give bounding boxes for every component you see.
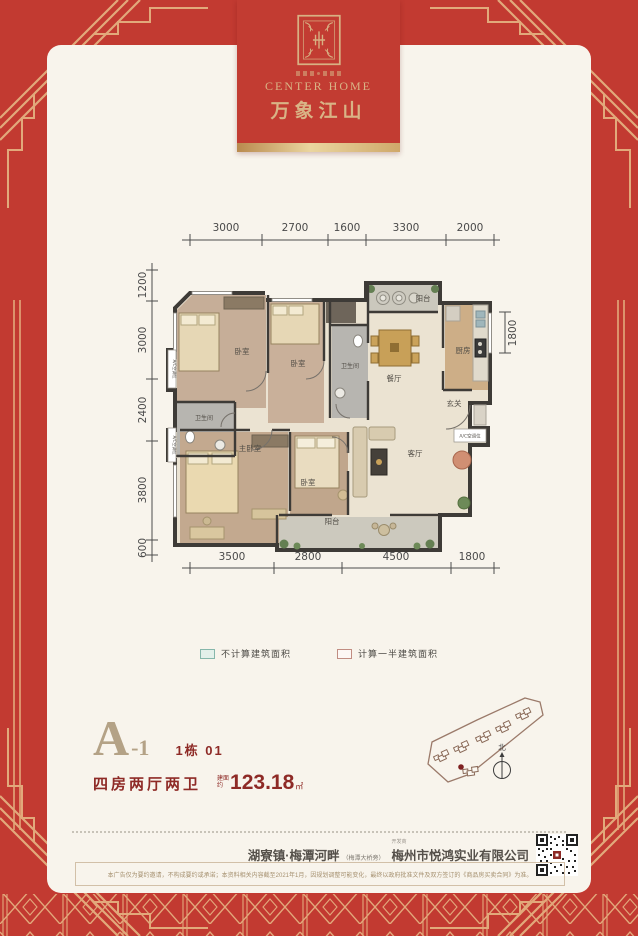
- room-label-bath-b: 卫生间: [195, 414, 213, 422]
- room-label-balcony-bottom: 阳台: [325, 516, 340, 526]
- developer-block: 开发商 梅州市悦鸿实业有限公司: [391, 839, 529, 864]
- dim-top-5: 2000: [457, 222, 484, 234]
- dim-bottom-2: 2800: [295, 551, 322, 563]
- dim-left-2: 3000: [137, 327, 149, 354]
- brand-banner: CENTER HOME 万象江山: [237, 0, 400, 152]
- unit-area-value: 123.18: [230, 771, 294, 795]
- dim-left-1: 1200: [137, 272, 149, 299]
- dim-bottom-3: 4500: [383, 551, 410, 563]
- footer-separator: [72, 831, 566, 833]
- room-label-balcony-top: 阳台: [416, 293, 431, 303]
- unit-layout: 四房两厅两卫: [93, 773, 201, 794]
- legend-label-excluded: 不计算建筑面积: [221, 647, 291, 660]
- unit-block: 1栋 01: [175, 740, 223, 759]
- room-label-bedroom-a: 卧室: [235, 346, 250, 356]
- unit-area: 建面约 123.18 ㎡: [217, 771, 303, 795]
- legend-label-half: 计算一半建筑面积: [358, 647, 438, 660]
- unit-area-prefix: 建面约: [217, 776, 229, 789]
- dim-left-4: 3800: [137, 477, 149, 504]
- footer-address: 湖寮镇·梅潭河畔 （梅潭大桥旁） 开发商 梅州市悦鸿实业有限公司: [248, 839, 529, 864]
- unit-suffix: -1: [131, 735, 149, 761]
- content-card: A/C空调位 A/C空调位 A/C空调位 卧室 卧室 卫生间 餐厅 厨房 玄关 …: [47, 45, 591, 893]
- room-label-dining: 餐厅: [387, 374, 402, 383]
- dim-top-1: 3000: [213, 222, 240, 234]
- dim-top-3: 1600: [334, 222, 361, 234]
- room-label-foyer: 玄关: [447, 398, 462, 408]
- floor-plan: A/C空调位 A/C空调位 A/C空调位 卧室 卧室 卫生间 餐厅 厨房 玄关 …: [132, 213, 532, 603]
- legend-item-excluded: 不计算建筑面积: [200, 647, 291, 660]
- dim-left-3: 2400: [137, 397, 149, 424]
- room-label-master: 主卧室: [239, 443, 262, 453]
- legend-swatch-excluded-icon: [200, 649, 215, 659]
- ac-label-right: A/C空调位: [459, 433, 481, 440]
- north-compass-icon: [494, 752, 511, 779]
- site-plan: 北: [417, 690, 557, 802]
- unit-info: A-1 1栋 01 四房两厅两卫 建面约 123.18 ㎡: [93, 713, 373, 795]
- room-label-bath-a: 卫生间: [341, 362, 359, 370]
- ac-label-left-1: A/C空调位: [172, 360, 178, 379]
- dim-right-1: 1800: [507, 320, 519, 347]
- room-label-bedroom-b: 卧室: [291, 358, 306, 368]
- poster: A/C空调位 A/C空调位 A/C空调位 卧室 卧室 卫生间 餐厅 厨房 玄关 …: [0, 0, 638, 936]
- brand-name-cn: 万象江山: [270, 96, 366, 123]
- brand-seal-icon: [294, 14, 344, 66]
- banner-gold-band: [237, 143, 400, 152]
- disclaimer-text: 本广告仅为要约邀请，不构成要约或承诺；本资料相关内容截至2021年1月，因规划调…: [108, 870, 533, 879]
- dim-top-4: 3300: [393, 222, 420, 234]
- north-label: 北: [498, 743, 506, 752]
- ac-label-left-2: A/C空调位: [172, 436, 178, 455]
- room-label-kitchen: 厨房: [456, 345, 471, 355]
- unit-area-unit: ㎡: [295, 781, 303, 792]
- brand-name-en: CENTER HOME: [265, 79, 372, 94]
- dim-bottom-1: 3500: [219, 551, 246, 563]
- room-label-living: 客厅: [408, 448, 423, 458]
- legend: 不计算建筑面积 计算一半建筑面积: [47, 647, 591, 660]
- banner-tagline-glyphs: [296, 70, 341, 76]
- room-label-bedroom-c: 卧室: [301, 477, 316, 487]
- dim-top-2: 2700: [282, 222, 309, 234]
- unit-location-dot: [458, 764, 464, 770]
- disclaimer-box: 本广告仅为要约邀请，不构成要约或承诺；本资料相关内容截至2021年1月，因规划调…: [75, 862, 565, 886]
- unit-name: A: [93, 713, 129, 763]
- dim-bottom-4: 1800: [459, 551, 486, 563]
- legend-swatch-half-icon: [337, 649, 352, 659]
- dim-left-5: 600: [137, 538, 149, 558]
- legend-item-half: 计算一半建筑面积: [337, 647, 438, 660]
